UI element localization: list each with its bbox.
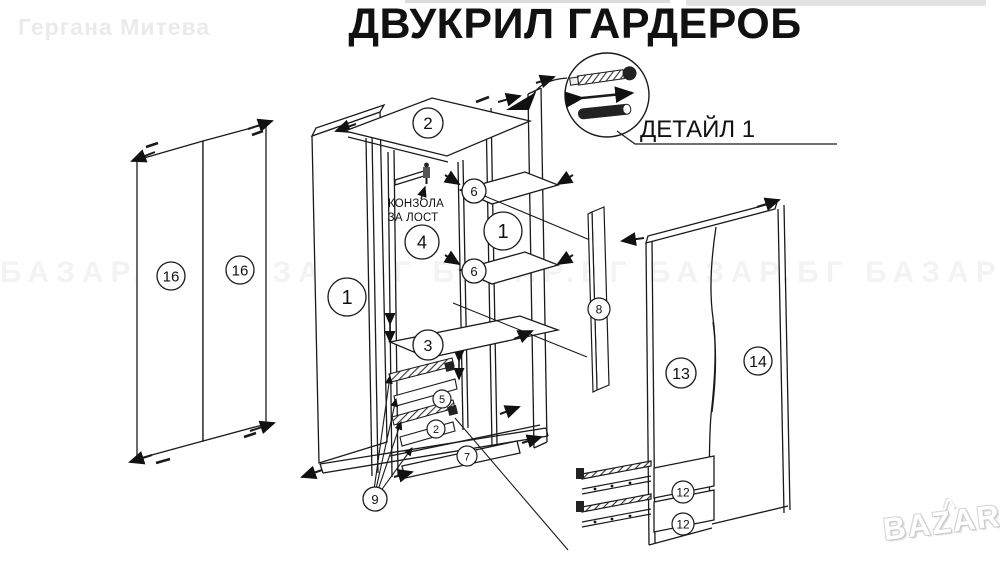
detail-1-label: ДЕТАЙЛ 1 (640, 115, 755, 143)
part-badge-13: 13 (666, 358, 696, 388)
part-badge-8: 8 (588, 298, 610, 320)
part-badge-1-left: 1 (328, 278, 366, 316)
bazar-logo-caret: ^ (942, 493, 960, 521)
part-badge-16-left: 16 (157, 262, 185, 290)
part-badge-6-upper: 6 (462, 179, 486, 203)
svg-text:4: 4 (417, 233, 427, 253)
hanger-rod (395, 163, 430, 199)
assembly-diagram: КОНЗОЛА ЗА ЛОСТ (0, 0, 1000, 563)
left-panels-16 (130, 121, 274, 463)
part-badge-5: 5 (433, 390, 451, 408)
svg-text:3: 3 (424, 338, 433, 355)
drawer-boxes-12 (576, 461, 651, 527)
svg-text:1: 1 (497, 221, 508, 243)
part-badge-12-upper: 12 (672, 481, 694, 503)
part-badge-14: 14 (744, 347, 772, 375)
svg-text:13: 13 (672, 366, 690, 383)
part-badge-7: 7 (457, 446, 477, 466)
part-badge-12-lower: 12 (672, 513, 694, 535)
part-badge-9: 9 (363, 487, 387, 511)
svg-text:14: 14 (749, 354, 767, 371)
svg-text:12: 12 (676, 518, 690, 532)
svg-text:2: 2 (433, 424, 439, 436)
svg-text:6: 6 (470, 264, 477, 279)
svg-text:12: 12 (676, 486, 690, 500)
svg-text:8: 8 (596, 303, 603, 317)
part-badge-2-bottom: 2 (427, 420, 445, 438)
svg-text:16: 16 (232, 263, 249, 280)
part-badge-3: 3 (413, 330, 443, 360)
svg-text:7: 7 (464, 452, 470, 464)
svg-text:9: 9 (371, 492, 378, 507)
part-badge-4: 4 (405, 225, 439, 259)
svg-text:16: 16 (163, 269, 180, 286)
svg-text:2: 2 (423, 114, 432, 133)
rod-console-label-line1: КОНЗОЛА (388, 198, 444, 210)
diagram-canvas: Гергана Митева ДВУКРИЛ ГАРДЕРОБ БАЗАР.БГ… (0, 0, 1000, 563)
part-badge-2-top: 2 (413, 108, 443, 138)
rod-console-label-line2: ЗА ЛОСТ (388, 212, 439, 224)
svg-text:1: 1 (341, 287, 352, 309)
part-badge-6-lower: 6 (462, 259, 486, 283)
part-badge-16-right: 16 (226, 256, 254, 284)
svg-text:6: 6 (470, 184, 477, 199)
svg-text:5: 5 (439, 394, 445, 406)
part-badge-1-right: 1 (484, 212, 522, 250)
